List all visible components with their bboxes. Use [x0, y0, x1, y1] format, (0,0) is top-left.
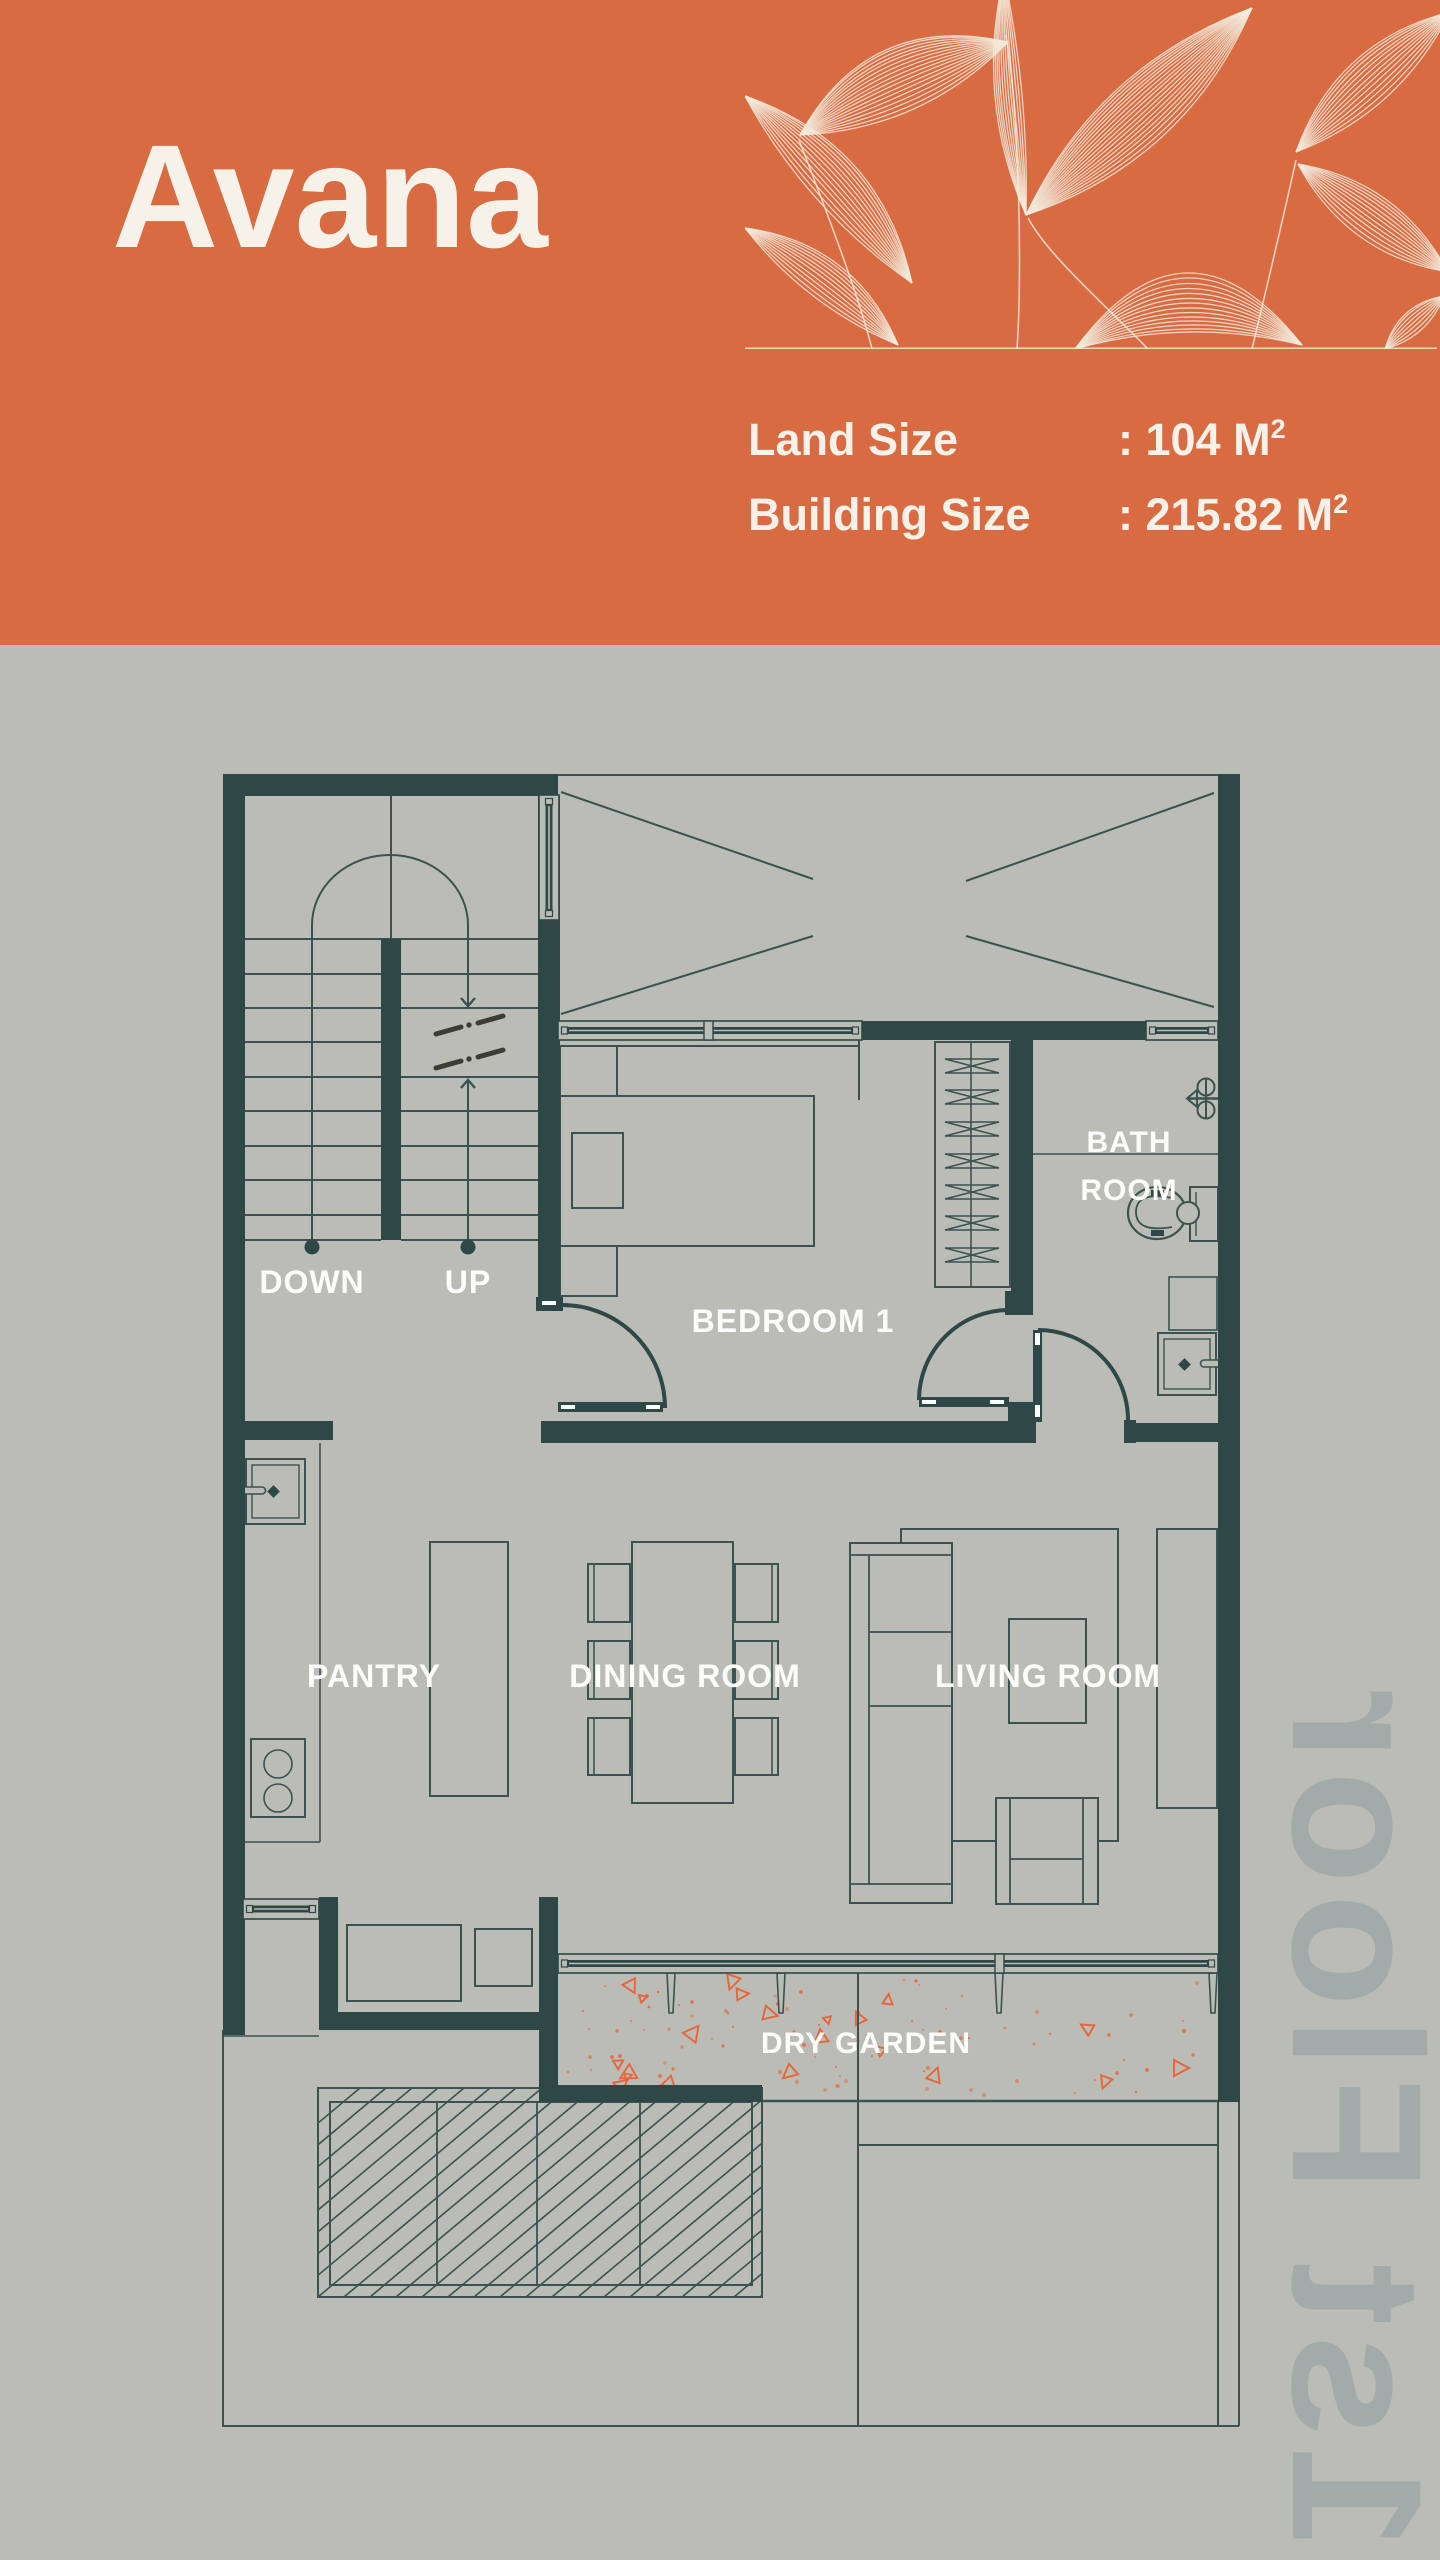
svg-text:PANTRY: PANTRY: [307, 1658, 441, 1694]
svg-text:UP: UP: [445, 1264, 491, 1300]
svg-text:DOWN: DOWN: [259, 1264, 364, 1300]
svg-text:Land Size: Land Size: [748, 414, 958, 465]
svg-text:: 104 M2: : 104 M2: [1118, 414, 1286, 465]
svg-text:ROOM: ROOM: [1080, 1174, 1177, 1207]
svg-text:1st Floor: 1st Floor: [1253, 1679, 1440, 2550]
svg-text:Building Size: Building Size: [748, 489, 1031, 540]
svg-text:DRY GARDEN: DRY GARDEN: [761, 2027, 971, 2060]
svg-text:: 215.82 M2: : 215.82 M2: [1118, 489, 1348, 540]
svg-text:DINING ROOM: DINING ROOM: [569, 1658, 800, 1694]
svg-text:BEDROOM 1: BEDROOM 1: [692, 1303, 895, 1339]
svg-text:LIVING ROOM: LIVING ROOM: [935, 1658, 1161, 1694]
svg-text:BATH: BATH: [1086, 1126, 1171, 1159]
svg-text:Avana: Avana: [112, 115, 549, 279]
